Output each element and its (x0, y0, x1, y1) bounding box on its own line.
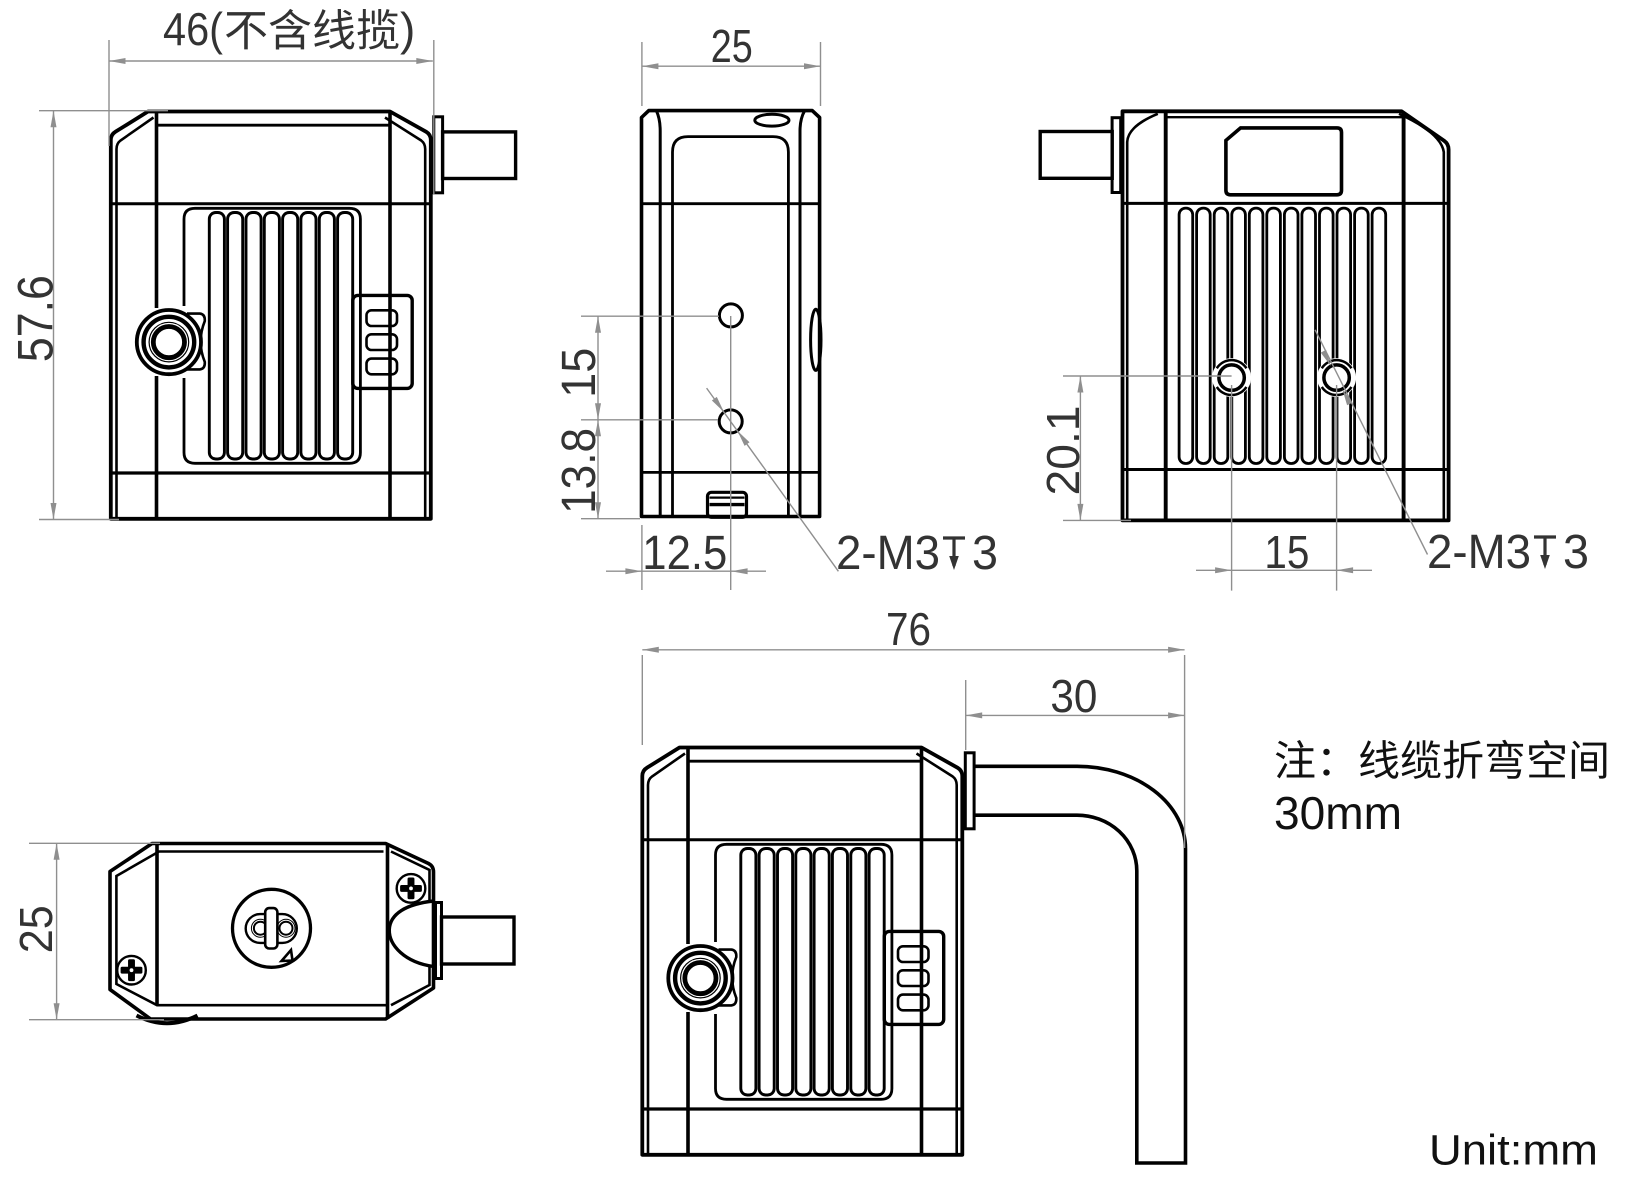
svg-text:2-M3: 2-M3 (836, 527, 940, 580)
svg-text:15: 15 (553, 348, 606, 398)
svg-text:3: 3 (1563, 526, 1589, 579)
svg-text:25: 25 (10, 905, 62, 953)
svg-text:46(: 46( (163, 3, 224, 55)
svg-text:15: 15 (1264, 526, 1309, 578)
svg-text:): ) (400, 3, 415, 55)
svg-text:20.1: 20.1 (1037, 406, 1089, 496)
svg-text:3: 3 (972, 527, 998, 580)
svg-text:12.5: 12.5 (642, 527, 727, 580)
svg-text:57.6: 57.6 (8, 275, 64, 362)
svg-text:30mm: 30mm (1274, 787, 1402, 839)
svg-text:Unit:mm: Unit:mm (1429, 1127, 1598, 1175)
svg-text:25: 25 (711, 20, 753, 72)
svg-text:2-M3: 2-M3 (1427, 526, 1531, 579)
svg-text:13.8: 13.8 (553, 428, 606, 514)
svg-text:30: 30 (1050, 670, 1097, 722)
svg-text:76: 76 (886, 603, 931, 655)
